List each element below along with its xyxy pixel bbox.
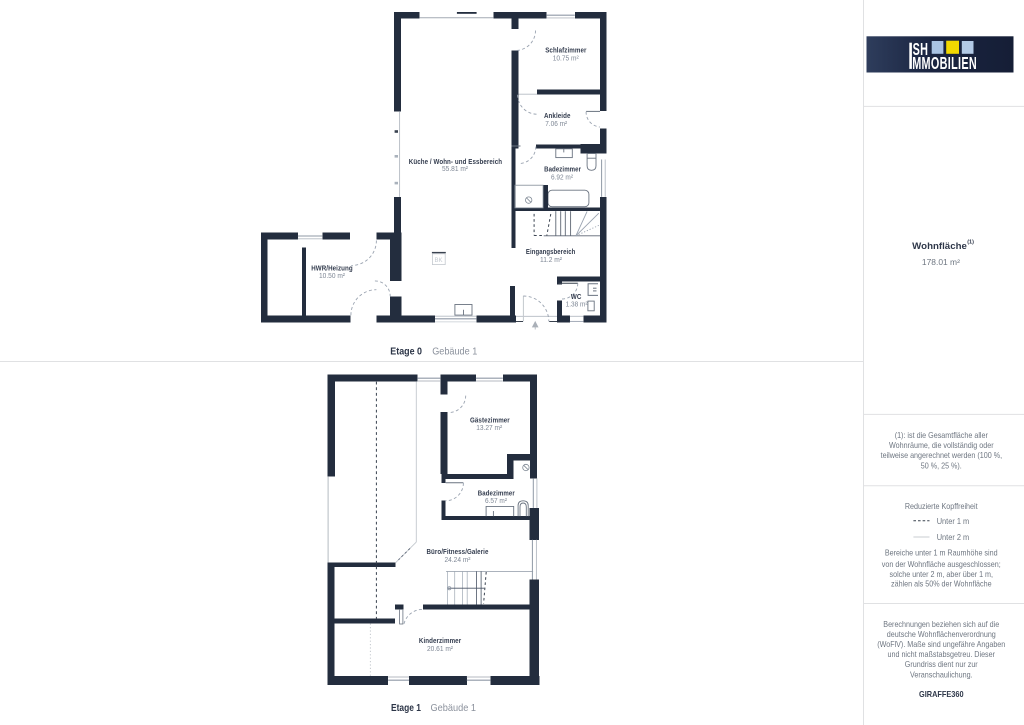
svg-text:HWR/Heizung: HWR/Heizung <box>311 263 353 272</box>
svg-text:6.92 m²: 6.92 m² <box>551 174 574 181</box>
svg-text:Badezimmer: Badezimmer <box>478 488 515 497</box>
svg-text:Gästezimmer: Gästezimmer <box>470 416 510 425</box>
svg-text:(WoFlV). Maße sind ungefähre A: (WoFlV). Maße sind ungefähre Angaben <box>877 640 1005 649</box>
svg-text:und nicht maßstabsgetreu. Dies: und nicht maßstabsgetreu. Dieser <box>888 650 996 659</box>
svg-text:Wohnräume, die vollständig ode: Wohnräume, die vollständig oder <box>889 441 994 450</box>
svg-text:Reduzierte Kopffreiheit: Reduzierte Kopffreiheit <box>905 502 978 511</box>
svg-text:Eingangsbereich: Eingangsbereich <box>526 247 576 256</box>
svg-text:Grundriss dient nur zur: Grundriss dient nur zur <box>905 660 978 669</box>
svg-text:50 %, 25 %).: 50 %, 25 %). <box>921 461 962 470</box>
svg-text:24.24 m²: 24.24 m² <box>445 557 472 564</box>
svg-text:178.01 m²: 178.01 m² <box>922 257 960 267</box>
svg-text:6.57 m²: 6.57 m² <box>485 498 508 505</box>
svg-text:WC: WC <box>571 292 582 301</box>
svg-text:Küche / Wohn- und Essbereich: Küche / Wohn- und Essbereich <box>409 157 503 166</box>
svg-text:Etage 0Gebäude 1: Etage 0Gebäude 1 <box>390 346 477 358</box>
svg-text:deutsche Wohnflächenverordnung: deutsche Wohnflächenverordnung <box>887 630 996 639</box>
svg-text:von der Wohnfläche ausgeschlos: von der Wohnfläche ausgeschlossen; <box>882 560 1001 569</box>
svg-text:Büro/Fitness/Galerie: Büro/Fitness/Galerie <box>427 547 489 556</box>
svg-text:(1): (1) <box>967 240 974 246</box>
svg-text:GIRAFFE360: GIRAFFE360 <box>919 689 964 699</box>
svg-text:13.27 m²: 13.27 m² <box>476 425 503 432</box>
svg-text:Kinderzimmer: Kinderzimmer <box>419 636 461 645</box>
svg-text:Wohnfläche: Wohnfläche <box>912 241 967 252</box>
svg-text:1.38 m²: 1.38 m² <box>566 302 589 309</box>
svg-text:zählen als 50% der Wohnfläche: zählen als 50% der Wohnfläche <box>891 580 992 589</box>
svg-text:Unter 2 m: Unter 2 m <box>937 533 970 542</box>
svg-text:Ankleide: Ankleide <box>544 111 571 120</box>
svg-text:(1): ist die Gesamtfläche alle: (1): ist die Gesamtfläche aller <box>895 431 988 440</box>
svg-text:teilweise angerechnet werden (: teilweise angerechnet werden (100 %, <box>881 451 1003 460</box>
svg-text:Unter 1 m: Unter 1 m <box>937 517 970 526</box>
svg-text:7.06 m²: 7.06 m² <box>545 121 568 128</box>
svg-text:Berechnungen beziehen sich auf: Berechnungen beziehen sich auf die <box>883 620 999 629</box>
svg-text:10.50 m²: 10.50 m² <box>319 273 346 280</box>
svg-text:Bereiche unter 1 m Raumhöhe si: Bereiche unter 1 m Raumhöhe sind <box>885 549 998 558</box>
svg-text:Etage 1Gebäude 1: Etage 1Gebäude 1 <box>391 702 476 714</box>
svg-text:10.75 m²: 10.75 m² <box>553 56 580 63</box>
svg-text:20.61 m²: 20.61 m² <box>427 646 454 653</box>
svg-text:solche unter 2 m, aber über 1: solche unter 2 m, aber über 1 m, <box>890 570 994 579</box>
svg-text:Veranschaulichung.: Veranschaulichung. <box>910 671 973 680</box>
svg-text:Badezimmer: Badezimmer <box>544 165 581 174</box>
svg-text:Schlafzimmer: Schlafzimmer <box>545 46 586 55</box>
svg-text:11.2 m²: 11.2 m² <box>540 257 563 264</box>
svg-text:55.81 m²: 55.81 m² <box>442 166 469 173</box>
svg-text:MMOBILIEN: MMOBILIEN <box>912 54 977 73</box>
svg-text:BK: BK <box>435 258 443 264</box>
